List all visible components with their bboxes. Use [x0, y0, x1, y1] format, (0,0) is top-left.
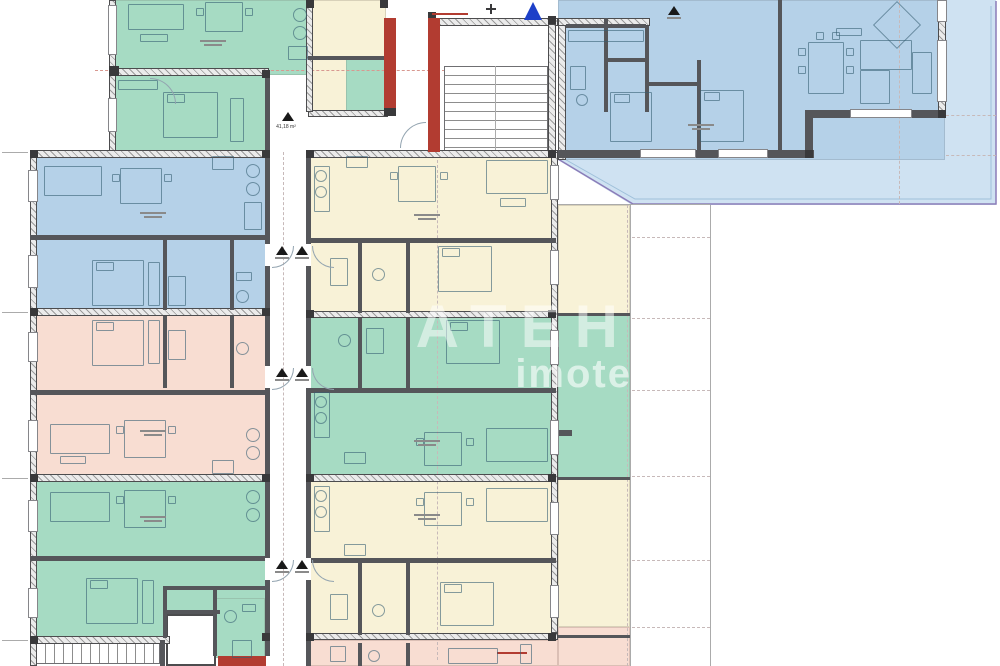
furniture	[424, 492, 462, 526]
line	[632, 204, 710, 205]
window	[550, 330, 559, 365]
wall-interior	[645, 82, 701, 86]
micro-label	[414, 214, 440, 216]
wall-interior	[163, 590, 167, 638]
furniture	[424, 432, 462, 466]
furniture	[120, 168, 162, 204]
door-gap	[265, 558, 270, 580]
wall-exterior	[30, 636, 170, 644]
stairwell-stairs	[444, 66, 548, 152]
wall-interior	[306, 152, 311, 666]
wall-interior	[406, 318, 410, 390]
furniture-round	[576, 94, 588, 106]
window	[550, 502, 559, 535]
wall-junction	[262, 70, 270, 78]
furniture	[128, 4, 184, 30]
wall-interior	[566, 24, 646, 28]
furniture	[142, 580, 154, 624]
furniture	[466, 438, 474, 446]
wall-interior	[160, 640, 165, 666]
wall-interior	[358, 643, 362, 666]
furniture	[486, 428, 548, 462]
wall-exterior	[308, 311, 558, 318]
furniture	[116, 426, 124, 434]
wall-junction	[30, 150, 38, 158]
furniture-round	[315, 506, 327, 518]
wall-junction	[548, 16, 556, 24]
furniture	[116, 496, 124, 504]
wall-interior	[308, 558, 556, 563]
furniture-round	[246, 490, 260, 504]
furniture	[846, 48, 854, 56]
furniture	[140, 34, 168, 42]
line	[558, 204, 632, 205]
furniture	[346, 156, 368, 168]
furniture	[96, 322, 114, 331]
furniture	[390, 172, 398, 180]
micro-label	[295, 571, 309, 573]
line	[2, 312, 28, 313]
wall-interior	[558, 635, 630, 638]
furniture-round	[315, 396, 327, 408]
window	[28, 332, 38, 362]
elevator-shaft	[166, 614, 216, 666]
furniture	[205, 2, 243, 32]
furniture	[836, 28, 862, 36]
wall-exterior	[558, 18, 566, 160]
micro-label	[275, 379, 289, 381]
window	[550, 585, 559, 618]
grid-dashed-line	[632, 318, 710, 319]
wall-junction	[548, 633, 556, 641]
furniture	[448, 648, 498, 664]
wall-exterior	[548, 24, 556, 152]
micro-label	[418, 218, 436, 220]
wall-interior	[163, 240, 167, 310]
line	[2, 152, 28, 153]
furniture	[816, 32, 824, 40]
furniture	[212, 460, 234, 474]
window	[28, 420, 38, 452]
furniture	[44, 166, 102, 196]
micro-label	[140, 430, 166, 432]
furniture-round	[246, 446, 260, 460]
line	[2, 640, 28, 641]
wall-interior	[308, 56, 386, 60]
wall-junction	[30, 474, 38, 482]
micro-label	[418, 444, 436, 446]
door-gap	[265, 366, 270, 388]
furniture	[912, 52, 932, 94]
window	[550, 420, 559, 455]
furniture	[50, 492, 110, 522]
wall-junction	[262, 474, 270, 482]
micro-label	[144, 520, 162, 522]
grid-dashed-line	[632, 237, 710, 238]
grid-dashed-line	[283, 152, 284, 666]
furniture	[486, 160, 548, 194]
wall-junction	[805, 150, 813, 158]
furniture	[236, 272, 252, 281]
window	[850, 109, 912, 118]
wall-junction	[548, 150, 556, 158]
furniture	[486, 488, 548, 522]
furniture	[466, 498, 474, 506]
wall-interior	[213, 590, 217, 656]
furniture-round	[372, 604, 385, 617]
micro-label	[414, 514, 440, 516]
grid-dashed-line	[946, 115, 996, 116]
furniture-round	[338, 334, 351, 347]
wall-junction	[490, 4, 492, 14]
furniture	[440, 172, 448, 180]
furniture	[798, 48, 806, 56]
furniture	[416, 498, 424, 506]
door-gap	[265, 244, 270, 266]
line	[2, 478, 28, 479]
furniture	[168, 330, 186, 360]
micro-label	[667, 17, 681, 19]
furniture	[245, 8, 253, 16]
grid-dashed-line	[437, 160, 438, 660]
grid-dashed-line	[946, 155, 996, 156]
furniture	[366, 328, 384, 354]
furniture-round	[293, 26, 307, 40]
furniture	[212, 156, 234, 170]
furniture-round	[246, 428, 260, 442]
wall-interior	[230, 316, 234, 388]
furniture	[148, 262, 160, 306]
wall-interior	[164, 610, 220, 614]
furniture	[520, 644, 532, 664]
micro-label	[414, 440, 440, 442]
wall-junction	[306, 633, 314, 641]
furniture-round	[372, 268, 385, 281]
shower-room	[346, 58, 386, 112]
line	[495, 66, 496, 152]
wall-exterior	[30, 150, 270, 158]
door-gap	[306, 366, 311, 388]
wall-interior	[308, 388, 556, 393]
furniture	[344, 452, 366, 464]
furniture-round	[224, 610, 237, 623]
wall-interior	[30, 390, 270, 395]
red-annotation	[432, 13, 468, 15]
door-gap	[306, 558, 311, 580]
wall-exterior	[30, 152, 37, 644]
furniture-round	[315, 170, 327, 182]
furniture	[168, 496, 176, 504]
micro-label	[144, 434, 162, 436]
window	[28, 170, 38, 202]
wall-interior	[558, 313, 630, 316]
terrace-green	[558, 315, 630, 478]
window	[718, 149, 768, 158]
furniture-round	[315, 490, 327, 502]
furniture	[442, 248, 460, 257]
furniture	[288, 46, 308, 60]
wall-junction	[306, 150, 314, 158]
micro-label	[144, 216, 162, 218]
wall-junction	[262, 150, 270, 158]
furniture	[860, 40, 912, 70]
wall-exterior	[308, 474, 558, 482]
micro-label	[295, 379, 309, 381]
furniture-round	[246, 508, 260, 522]
wall-interior	[265, 75, 270, 152]
furniture	[168, 426, 176, 434]
wall-junction	[548, 310, 556, 318]
furniture	[244, 202, 262, 230]
furniture	[568, 30, 644, 42]
wall-interior	[163, 316, 167, 388]
terrace-pink	[558, 627, 630, 666]
furniture	[196, 8, 204, 16]
furniture	[450, 322, 468, 331]
micro-label	[688, 124, 714, 126]
door-gap	[306, 118, 313, 144]
furniture	[232, 640, 252, 658]
window	[937, 40, 947, 102]
grid-dashed-line	[632, 390, 710, 391]
furniture-round	[246, 164, 260, 178]
furniture-round	[368, 650, 380, 662]
furniture	[242, 604, 256, 612]
wall-exterior	[308, 633, 558, 640]
furniture	[846, 66, 854, 74]
wall-interior	[406, 643, 410, 666]
furniture-round	[315, 412, 327, 424]
micro-label	[140, 516, 166, 518]
floor-plan-canvas: АТЕН imote 41,18 m²	[0, 0, 1000, 666]
stair-area-label: 41,18 m²	[266, 124, 306, 130]
furniture	[60, 456, 86, 464]
furniture	[168, 276, 186, 306]
furniture	[90, 580, 108, 589]
window	[550, 165, 559, 200]
wall-interior	[358, 318, 362, 390]
wall-junction	[380, 0, 388, 8]
wall-interior	[358, 562, 362, 635]
micro-label	[200, 40, 226, 42]
grid-dashed-line	[627, 205, 628, 666]
wall-junction	[262, 633, 270, 641]
wall-junction	[109, 66, 119, 76]
stairs-bottom	[36, 642, 160, 664]
wall-junction	[938, 110, 946, 118]
wall-junction	[306, 474, 314, 482]
wall-interior	[778, 0, 782, 152]
wall-interior	[30, 556, 270, 561]
wall-junction	[548, 474, 556, 482]
window	[640, 149, 696, 158]
wall-interior	[30, 235, 270, 240]
line	[710, 205, 711, 666]
wall-interior	[308, 238, 556, 243]
red-wall	[428, 18, 440, 152]
furniture-round	[236, 342, 249, 355]
furniture	[798, 66, 806, 74]
furniture	[330, 594, 348, 620]
wall-interior	[406, 562, 410, 635]
grid-dashed-line	[632, 627, 710, 628]
micro-label	[692, 128, 710, 130]
furniture	[704, 92, 720, 101]
terrace-yellow	[558, 478, 630, 627]
wall-junction	[306, 0, 314, 8]
furniture	[344, 544, 366, 556]
furniture	[124, 420, 166, 458]
micro-label	[418, 518, 436, 520]
wall-exterior	[308, 110, 388, 117]
wall-exterior	[109, 68, 269, 76]
micro-label	[295, 257, 309, 259]
wall-exterior	[30, 474, 270, 482]
wall-junction	[30, 308, 38, 316]
wall-interior	[230, 240, 234, 310]
terrace-cream	[558, 205, 630, 315]
furniture	[500, 198, 526, 207]
window	[28, 255, 38, 288]
furniture	[398, 166, 436, 202]
window	[937, 0, 947, 22]
furniture-round	[293, 8, 307, 22]
line	[630, 205, 631, 666]
micro-label	[204, 44, 222, 46]
grid-dashed-line	[632, 476, 710, 477]
wall-junction	[306, 310, 314, 318]
furniture	[50, 424, 110, 454]
wall-junction	[30, 636, 38, 644]
furniture	[124, 490, 166, 528]
wall-interior	[604, 58, 648, 62]
micro-label	[275, 571, 289, 573]
furniture	[148, 320, 160, 364]
furniture-round	[246, 182, 260, 196]
north-arrow-icon	[524, 2, 542, 20]
furniture	[614, 94, 630, 103]
grid-dashed-line	[632, 560, 710, 561]
furniture	[570, 66, 586, 90]
wall-interior	[558, 477, 630, 480]
window	[108, 98, 117, 132]
micro-label	[140, 212, 166, 214]
furniture	[808, 42, 844, 94]
wall-exterior	[30, 308, 270, 316]
furniture-round	[315, 186, 327, 198]
furniture-round	[236, 290, 249, 303]
wall-interior	[265, 152, 270, 656]
window	[28, 500, 38, 532]
door-gap	[306, 244, 311, 266]
wall-junction	[262, 308, 270, 316]
furniture	[112, 174, 120, 182]
furniture	[330, 646, 346, 662]
wall-interior	[358, 242, 362, 313]
furniture	[444, 584, 462, 593]
furniture	[860, 70, 890, 104]
micro-label	[275, 257, 289, 259]
window	[28, 588, 38, 618]
wall-interior	[406, 242, 410, 313]
window	[108, 5, 117, 55]
red-wall	[384, 18, 396, 108]
furniture	[96, 262, 114, 271]
window	[550, 250, 559, 285]
furniture	[230, 98, 244, 142]
furniture	[164, 174, 172, 182]
